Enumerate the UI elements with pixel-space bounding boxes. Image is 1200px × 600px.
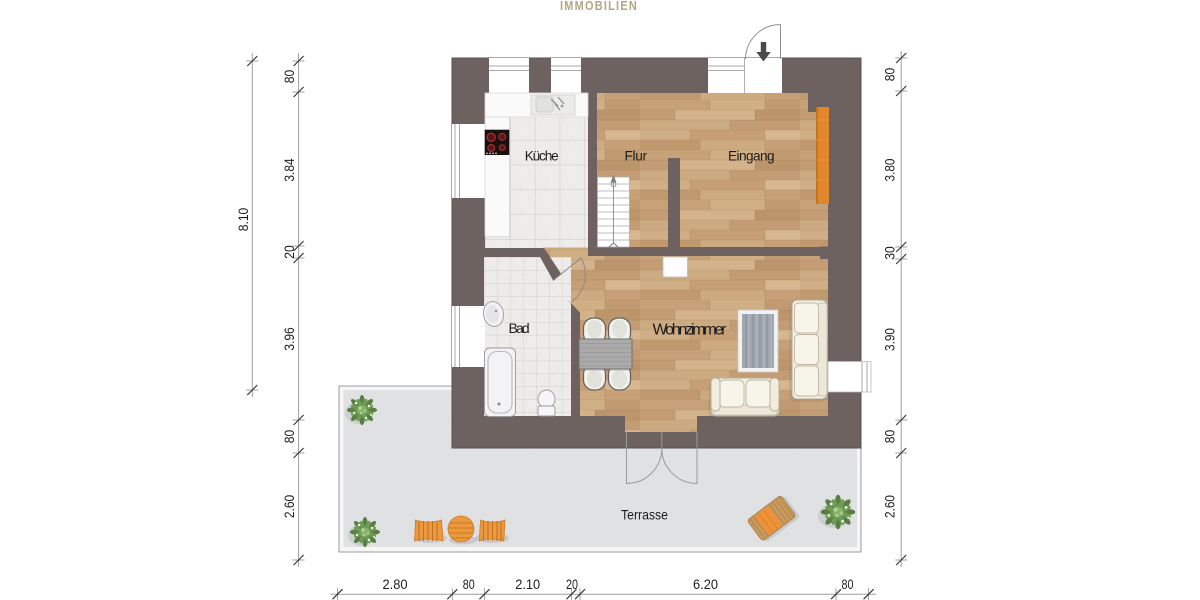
svg-text:80: 80 <box>842 577 854 592</box>
svg-text:6.20: 6.20 <box>693 577 718 592</box>
svg-text:80: 80 <box>463 577 475 592</box>
svg-text:3.84: 3.84 <box>282 158 297 182</box>
svg-text:Terrasse: Terrasse <box>621 507 668 523</box>
svg-text:2.80: 2.80 <box>383 577 408 592</box>
svg-text:2.60: 2.60 <box>282 495 297 518</box>
svg-text:2.10: 2.10 <box>515 577 540 592</box>
svg-text:20: 20 <box>282 245 297 259</box>
svg-text:Bad: Bad <box>509 320 530 336</box>
svg-text:3.90: 3.90 <box>883 328 898 351</box>
svg-text:Wohnzimmer: Wohnzimmer <box>653 322 728 339</box>
svg-text:8.10: 8.10 <box>236 208 251 232</box>
svg-text:80: 80 <box>883 68 898 82</box>
svg-text:IMMOBILIEN: IMMOBILIEN <box>560 0 638 13</box>
svg-text:Eingang: Eingang <box>728 149 775 164</box>
svg-text:20: 20 <box>566 577 578 592</box>
svg-text:2.60: 2.60 <box>883 495 898 518</box>
svg-text:80: 80 <box>883 430 898 444</box>
svg-text:80: 80 <box>282 430 297 444</box>
svg-text:Küche: Küche <box>525 149 559 164</box>
svg-text:30: 30 <box>883 246 898 260</box>
svg-text:80: 80 <box>282 70 297 84</box>
svg-text:3.96: 3.96 <box>282 327 297 350</box>
svg-text:3.80: 3.80 <box>883 159 898 182</box>
svg-text:Flur: Flur <box>625 149 648 164</box>
